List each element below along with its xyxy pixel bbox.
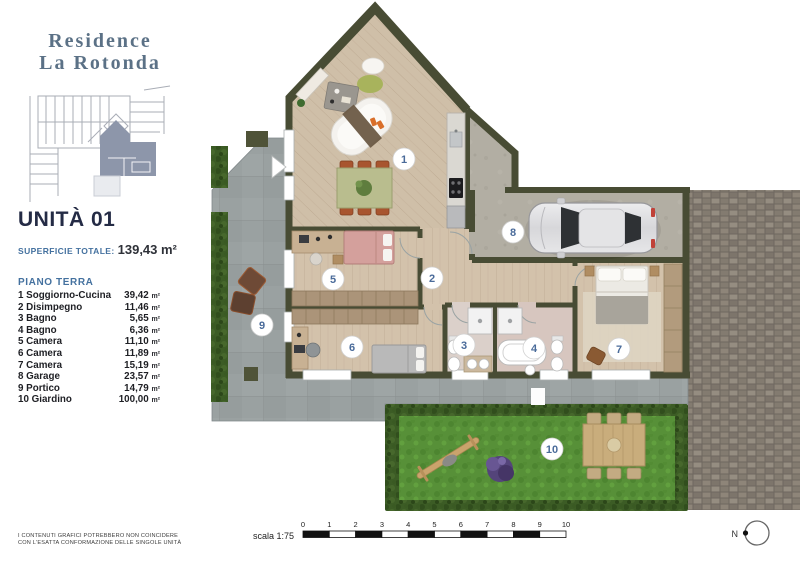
brand-line2: La Rotonda bbox=[0, 52, 200, 74]
ottoman-pouf bbox=[362, 58, 384, 74]
svg-text:5: 5 bbox=[432, 520, 436, 529]
disclaimer-line2: CON L'ESATTA CONFORMAZIONE DELLE SINGOLE… bbox=[18, 540, 181, 547]
svg-text:0: 0 bbox=[301, 520, 305, 529]
nightstand bbox=[650, 266, 659, 276]
room-name: 8 Garage bbox=[18, 371, 124, 382]
disclaimer: I CONTENUTI GRAFICI POTREBBERO NON COINC… bbox=[18, 533, 181, 547]
total-area: SUPERFICIE TOTALE:139,43 m² bbox=[18, 241, 177, 259]
room-list-item: 5 Camera11,10 m² bbox=[18, 336, 160, 348]
room-area: 5,65 bbox=[130, 313, 149, 324]
room-unit: m² bbox=[151, 293, 160, 300]
room-list-item: 4 Bagno6,36 m² bbox=[18, 325, 160, 337]
room-unit: m² bbox=[151, 305, 160, 312]
kitchen-counter bbox=[447, 113, 465, 228]
room-name: 2 Disimpegno bbox=[18, 302, 125, 313]
svg-text:7: 7 bbox=[616, 344, 622, 356]
room-marker-9: 9 bbox=[251, 314, 273, 336]
svg-text:3: 3 bbox=[380, 520, 384, 529]
room-marker-3: 3 bbox=[453, 334, 475, 356]
room-list-item: 1 Soggiorno-Cucina39,42 m² bbox=[18, 290, 160, 302]
scale-bar: scala 1:75 0 1 2 3 4 5 6 bbox=[253, 520, 570, 541]
room-unit: m² bbox=[151, 363, 160, 370]
room-marker-7: 7 bbox=[608, 338, 630, 360]
scale-label: scala 1:75 bbox=[253, 531, 294, 541]
unit-title: UNITÀ 01 bbox=[18, 208, 115, 232]
room-list-item: 6 Camera11,89 m² bbox=[18, 348, 160, 360]
room-list-item: 3 Bagno5,65 m² bbox=[18, 313, 160, 325]
room-name: 7 Camera bbox=[18, 360, 124, 371]
room-marker-5: 5 bbox=[322, 268, 344, 290]
room-name: 5 Camera bbox=[18, 336, 125, 347]
room-marker-1: 1 bbox=[393, 148, 415, 170]
garage-entry-floor bbox=[467, 112, 513, 190]
svg-text:4: 4 bbox=[531, 343, 538, 355]
room-list-item: 7 Camera15,19 m² bbox=[18, 360, 160, 372]
info-panel: Residence La Rotonda bbox=[0, 0, 200, 561]
nightstand bbox=[585, 266, 594, 276]
room-name: 4 Bagno bbox=[18, 325, 130, 336]
room-marker-8: 8 bbox=[502, 221, 524, 243]
total-area-value: 139,43 m² bbox=[118, 242, 177, 257]
svg-text:10: 10 bbox=[562, 520, 570, 529]
room-area: 14,79 bbox=[124, 383, 149, 394]
pillar bbox=[244, 367, 258, 381]
room-area: 6,36 bbox=[130, 325, 149, 336]
bidet bbox=[448, 357, 460, 371]
svg-text:3: 3 bbox=[461, 340, 467, 352]
garden-gate-gap bbox=[531, 388, 545, 405]
room-unit: m² bbox=[151, 316, 160, 323]
svg-text:8: 8 bbox=[510, 227, 516, 239]
sink bbox=[525, 365, 535, 375]
paved-driveway bbox=[688, 190, 800, 510]
room-unit: m² bbox=[151, 351, 160, 358]
floor-label: PIANO TERRA bbox=[18, 277, 94, 288]
room-area: 23,57 bbox=[124, 371, 149, 382]
room-unit: m² bbox=[151, 397, 160, 404]
doormat bbox=[246, 131, 268, 147]
svg-text:6: 6 bbox=[459, 520, 463, 529]
brand-title: Residence La Rotonda bbox=[0, 30, 200, 74]
room-name: 9 Portico bbox=[18, 383, 124, 394]
pouf bbox=[230, 291, 256, 315]
site-plan-highlighted-unit bbox=[94, 120, 156, 196]
nightstand bbox=[333, 255, 343, 264]
hedge-strip-left bbox=[211, 212, 228, 402]
disclaimer-line1: I CONTENUTI GRAFICI POTREBBERO NON COINC… bbox=[18, 533, 181, 540]
room-marker-10: 10 bbox=[541, 438, 563, 460]
svg-text:5: 5 bbox=[330, 274, 336, 286]
garage-car bbox=[525, 198, 661, 260]
wardrobe-right bbox=[664, 264, 682, 372]
room-unit: m² bbox=[151, 328, 160, 335]
toilet bbox=[551, 340, 563, 354]
svg-text:9: 9 bbox=[259, 320, 265, 332]
north-compass-icon: N bbox=[732, 521, 770, 545]
stool bbox=[310, 253, 322, 265]
bidet bbox=[551, 357, 563, 371]
bed-pink bbox=[344, 231, 394, 264]
svg-text:9: 9 bbox=[538, 520, 542, 529]
room-list-item: 8 Garage23,57 m² bbox=[18, 371, 160, 383]
room-unit: m² bbox=[151, 386, 160, 393]
room-marker-2: 2 bbox=[421, 267, 443, 289]
total-area-label: SUPERFICIE TOTALE: bbox=[18, 246, 115, 256]
scale-ticks: 0 1 2 3 4 5 6 7 8 9 10 bbox=[301, 520, 570, 529]
plant bbox=[297, 99, 305, 107]
room-name: 10 Giardino bbox=[18, 394, 119, 405]
hedge-strip-top-left bbox=[211, 146, 228, 188]
brochure-page: Residence La Rotonda bbox=[0, 0, 800, 561]
svg-text:2: 2 bbox=[354, 520, 358, 529]
laptop bbox=[294, 345, 305, 353]
brand-line1: Residence bbox=[0, 30, 200, 52]
room-unit: m² bbox=[151, 374, 160, 381]
round-rug bbox=[357, 75, 383, 93]
svg-text:7: 7 bbox=[485, 520, 489, 529]
bedroom7-furniture bbox=[583, 264, 682, 372]
room-area: 100,00 bbox=[119, 394, 149, 405]
bed-double bbox=[596, 266, 648, 324]
room-area: 11,89 bbox=[125, 348, 149, 359]
svg-text:1: 1 bbox=[401, 154, 407, 166]
room-area: 39,42 bbox=[124, 290, 149, 301]
svg-text:10: 10 bbox=[546, 444, 558, 456]
laptop bbox=[299, 235, 309, 243]
room-list: 1 Soggiorno-Cucina39,42 m² 2 Disimpegno1… bbox=[18, 290, 160, 406]
room-name: 3 Bagno bbox=[18, 313, 130, 324]
room-name: 6 Camera bbox=[18, 348, 125, 359]
room-area: 15,19 bbox=[124, 360, 149, 371]
svg-text:4: 4 bbox=[406, 520, 410, 529]
room-marker-6: 6 bbox=[341, 336, 363, 358]
garden bbox=[385, 388, 688, 511]
svg-text:8: 8 bbox=[511, 520, 515, 529]
room-marker-4: 4 bbox=[523, 337, 545, 359]
site-plan-thumbnail bbox=[24, 84, 176, 206]
svg-text:6: 6 bbox=[349, 342, 355, 354]
garden-table-set bbox=[583, 413, 645, 479]
room-unit: m² bbox=[151, 339, 160, 346]
room-area: 11,10 bbox=[125, 336, 149, 347]
dining-set bbox=[337, 161, 392, 215]
room-list-item: 10 Giardino100,00 m² bbox=[18, 394, 160, 406]
room-list-item: 9 Portico14,79 m² bbox=[18, 383, 160, 395]
chair bbox=[306, 343, 320, 357]
svg-text:2: 2 bbox=[429, 273, 435, 285]
room-area: 11,46 bbox=[125, 302, 149, 313]
north-label: N bbox=[732, 529, 739, 539]
bed-gray bbox=[372, 345, 426, 373]
svg-text:1: 1 bbox=[327, 520, 331, 529]
room-name: 1 Soggiorno-Cucina bbox=[18, 290, 124, 301]
room-list-item: 2 Disimpegno11,46 m² bbox=[18, 302, 160, 314]
